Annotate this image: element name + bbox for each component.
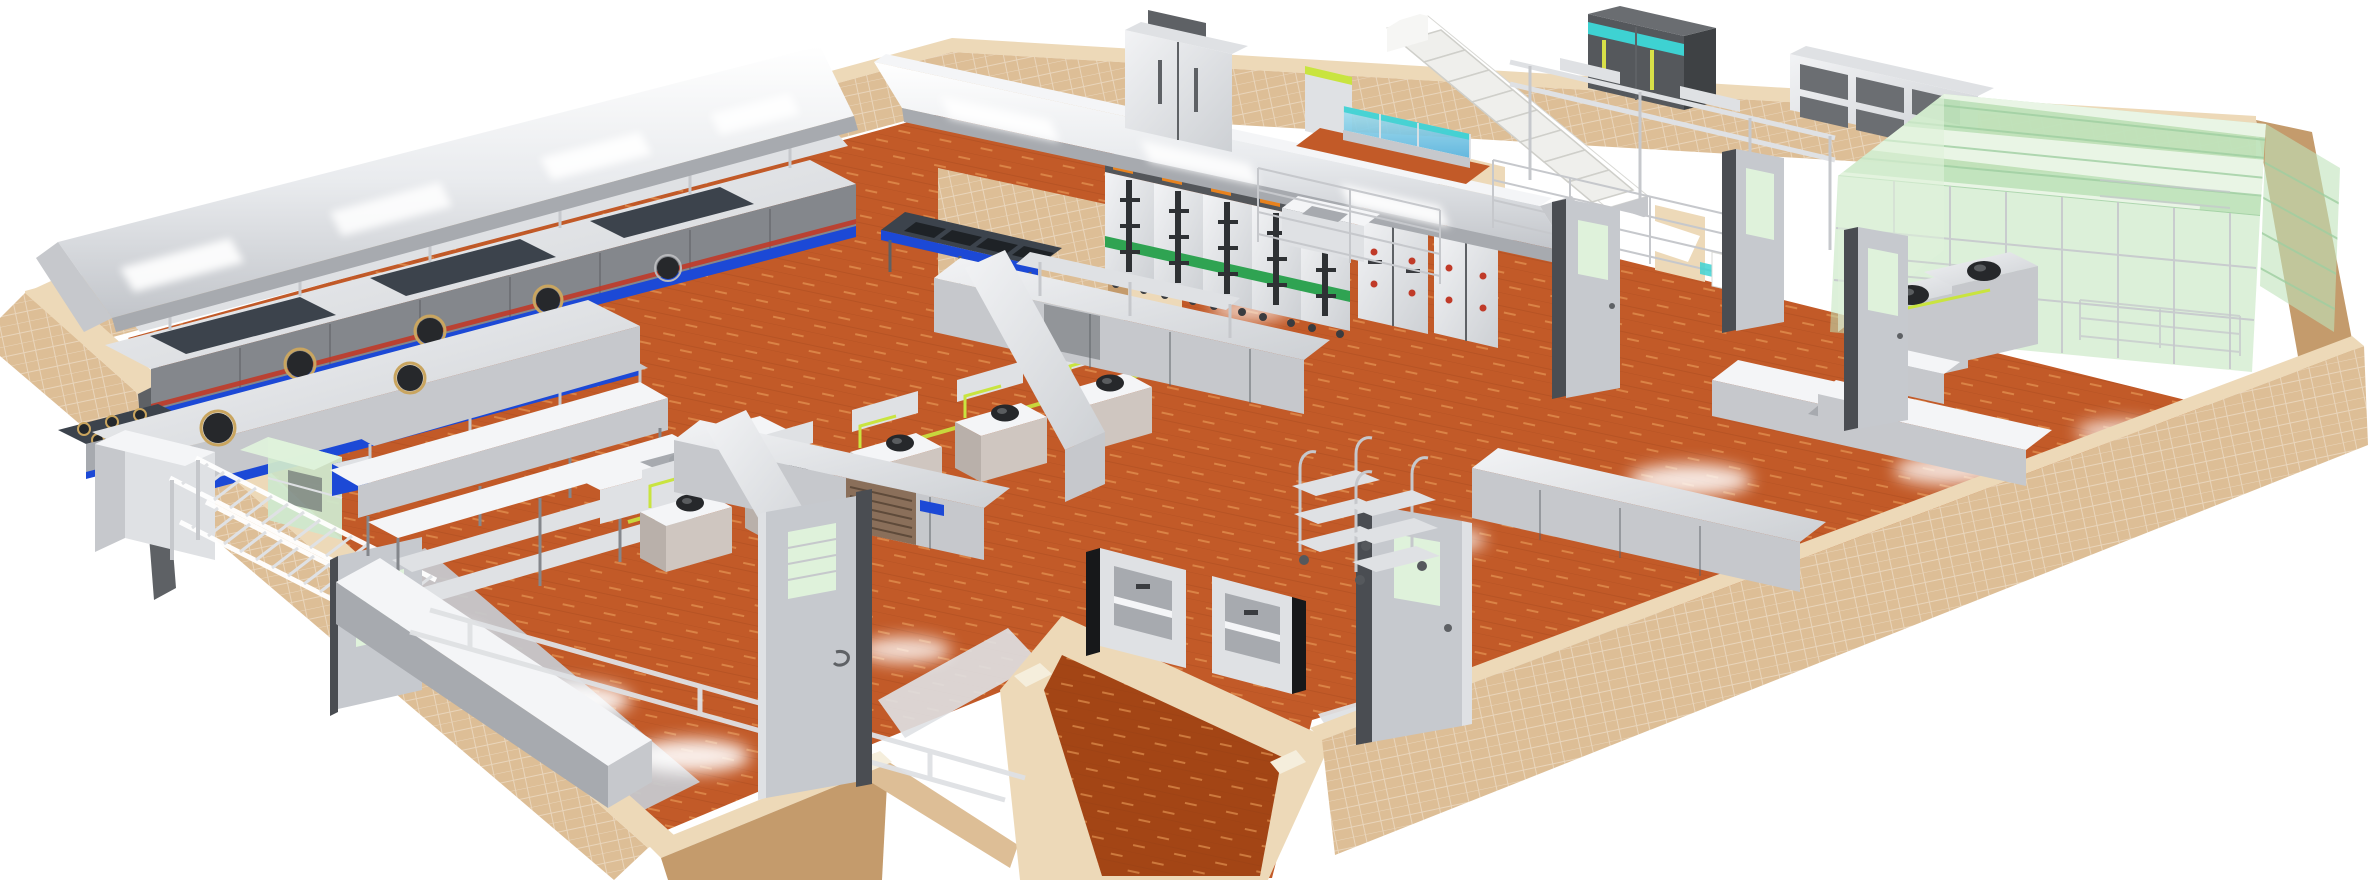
door-center-2	[1722, 149, 1784, 333]
upright-fridge	[1125, 10, 1248, 152]
kitchen-render	[0, 0, 2368, 880]
glass-right-section	[2260, 124, 2340, 332]
kitchen-3d-scene	[0, 0, 2368, 880]
door-center-1	[1552, 199, 1620, 399]
door-center-3	[1844, 227, 1908, 431]
door-south-main	[758, 489, 872, 800]
